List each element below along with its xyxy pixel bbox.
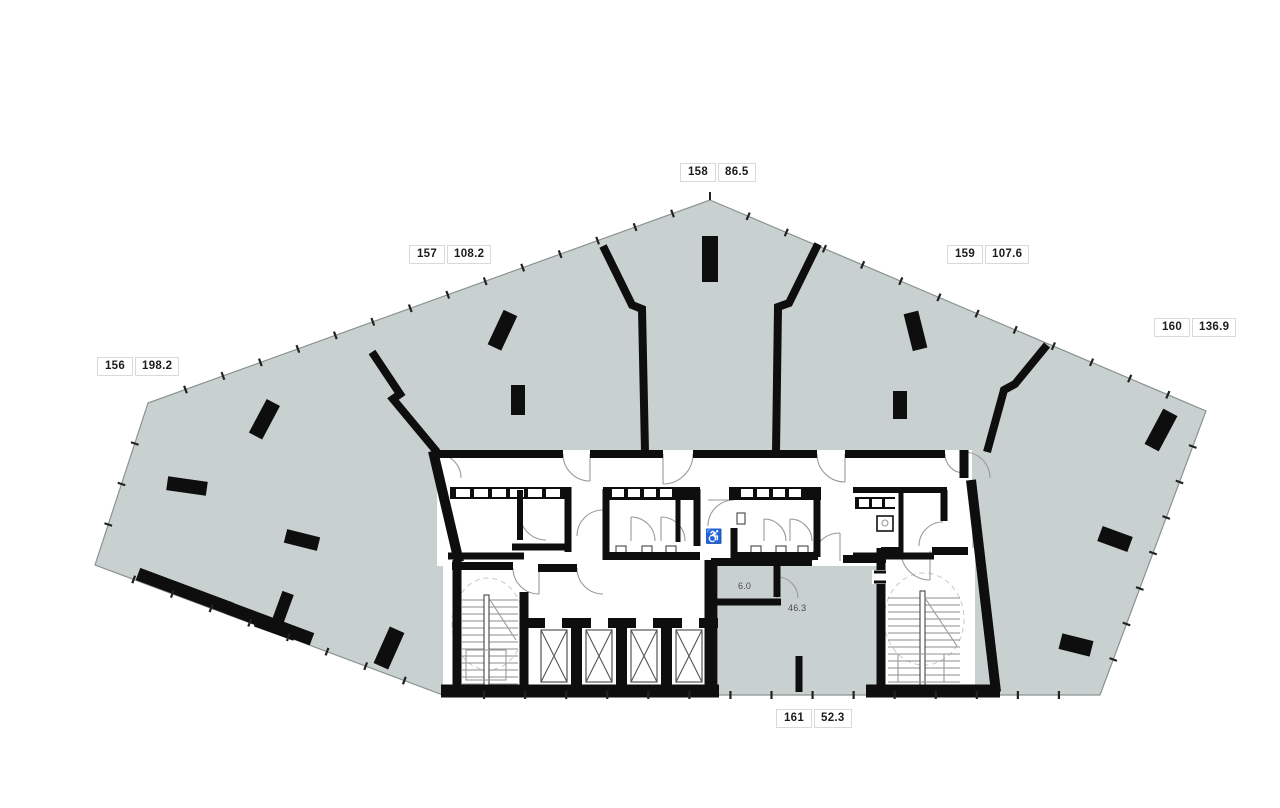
unit-label-157[interactable]: 157 108.2	[409, 245, 491, 264]
unit-label-158[interactable]: 158 86.5	[680, 163, 756, 182]
floorplan-drawing: ♿	[0, 0, 1280, 808]
unit-area: 136.9	[1192, 318, 1236, 337]
unit-id: 160	[1154, 318, 1190, 337]
unit-area: 108.2	[447, 245, 491, 264]
unit-area: 86.5	[718, 163, 756, 182]
wheelchair-icon: ♿	[705, 528, 722, 545]
unit-label-161[interactable]: 161 52.3	[776, 709, 852, 728]
elevator-shaft	[631, 630, 657, 682]
unit-area: 107.6	[985, 245, 1029, 264]
elevator-shaft	[586, 630, 612, 682]
room-area-label: 46.3	[788, 603, 806, 613]
unit-id: 156	[97, 357, 133, 376]
room-area-label: 6.0	[738, 581, 751, 591]
floorplan-canvas: ♿ 156 198.2 157 108.2 158 86.5 159 107.6…	[0, 0, 1280, 808]
unit-label-160[interactable]: 160 136.9	[1154, 318, 1236, 337]
unit-id: 161	[776, 709, 812, 728]
unit-area: 52.3	[814, 709, 852, 728]
elevator-shaft	[676, 630, 702, 682]
unit-id: 158	[680, 163, 716, 182]
unit-label-156[interactable]: 156 198.2	[97, 357, 179, 376]
unit-area: 198.2	[135, 357, 179, 376]
unit-label-159[interactable]: 159 107.6	[947, 245, 1029, 264]
unit-id: 159	[947, 245, 983, 264]
elevator-shaft	[541, 630, 567, 682]
unit-id: 157	[409, 245, 445, 264]
